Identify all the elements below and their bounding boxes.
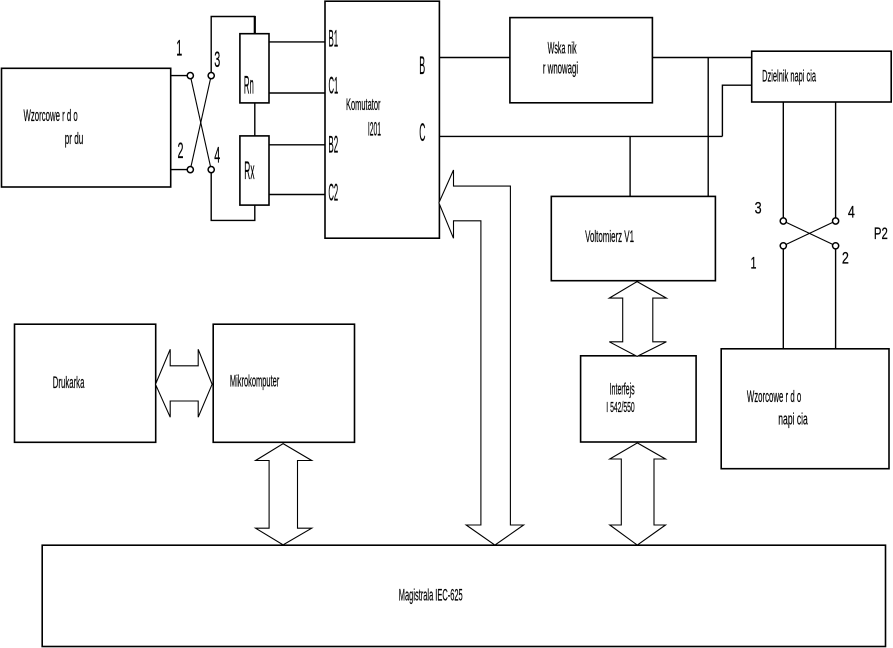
svg-text:Dzielnik napi cia: Dzielnik napi cia (762, 67, 816, 86)
svg-text:Wzorcowe r d o: Wzorcowe r d o (747, 387, 801, 406)
svg-text:P2: P2 (874, 224, 888, 243)
svg-text:2: 2 (842, 249, 849, 268)
svg-text:1: 1 (176, 36, 182, 61)
svg-text:4: 4 (214, 142, 220, 167)
svg-text:Mikrokomputer: Mikrokomputer (230, 372, 280, 391)
svg-text:Rn: Rn (244, 72, 254, 100)
svg-text:Voltomierz V1: Voltomierz V1 (585, 227, 634, 246)
svg-text:Komutator: Komutator (346, 95, 381, 114)
svg-text:B2: B2 (328, 132, 338, 159)
svg-text:I201: I201 (368, 119, 381, 141)
svg-text:Rx: Rx (244, 157, 254, 185)
svg-text:Magistrala IEC-625: Magistrala IEC-625 (399, 586, 463, 605)
svg-text:B1: B1 (329, 26, 339, 53)
svg-text:3: 3 (214, 47, 220, 72)
svg-text:C2: C2 (328, 180, 338, 207)
svg-text:I 542/550: I 542/550 (606, 399, 634, 416)
svg-text:B: B (419, 52, 425, 80)
svg-text:C: C (419, 119, 425, 147)
svg-text:4: 4 (848, 203, 855, 222)
svg-text:r wnowagi: r wnowagi (543, 59, 578, 78)
svg-text:C1: C1 (329, 73, 339, 100)
svg-text:pr du: pr du (65, 129, 84, 148)
svg-text:napi cia: napi cia (778, 410, 808, 429)
svg-text:Interfejs: Interfejs (610, 380, 635, 399)
svg-text:3: 3 (755, 199, 762, 218)
svg-text:Wzorcowe r d o: Wzorcowe r d o (24, 106, 78, 125)
svg-text:2: 2 (178, 138, 184, 163)
svg-text:1: 1 (751, 254, 757, 273)
svg-text:Drukarka: Drukarka (53, 373, 85, 392)
svg-text:Wska nik: Wska nik (548, 39, 577, 58)
